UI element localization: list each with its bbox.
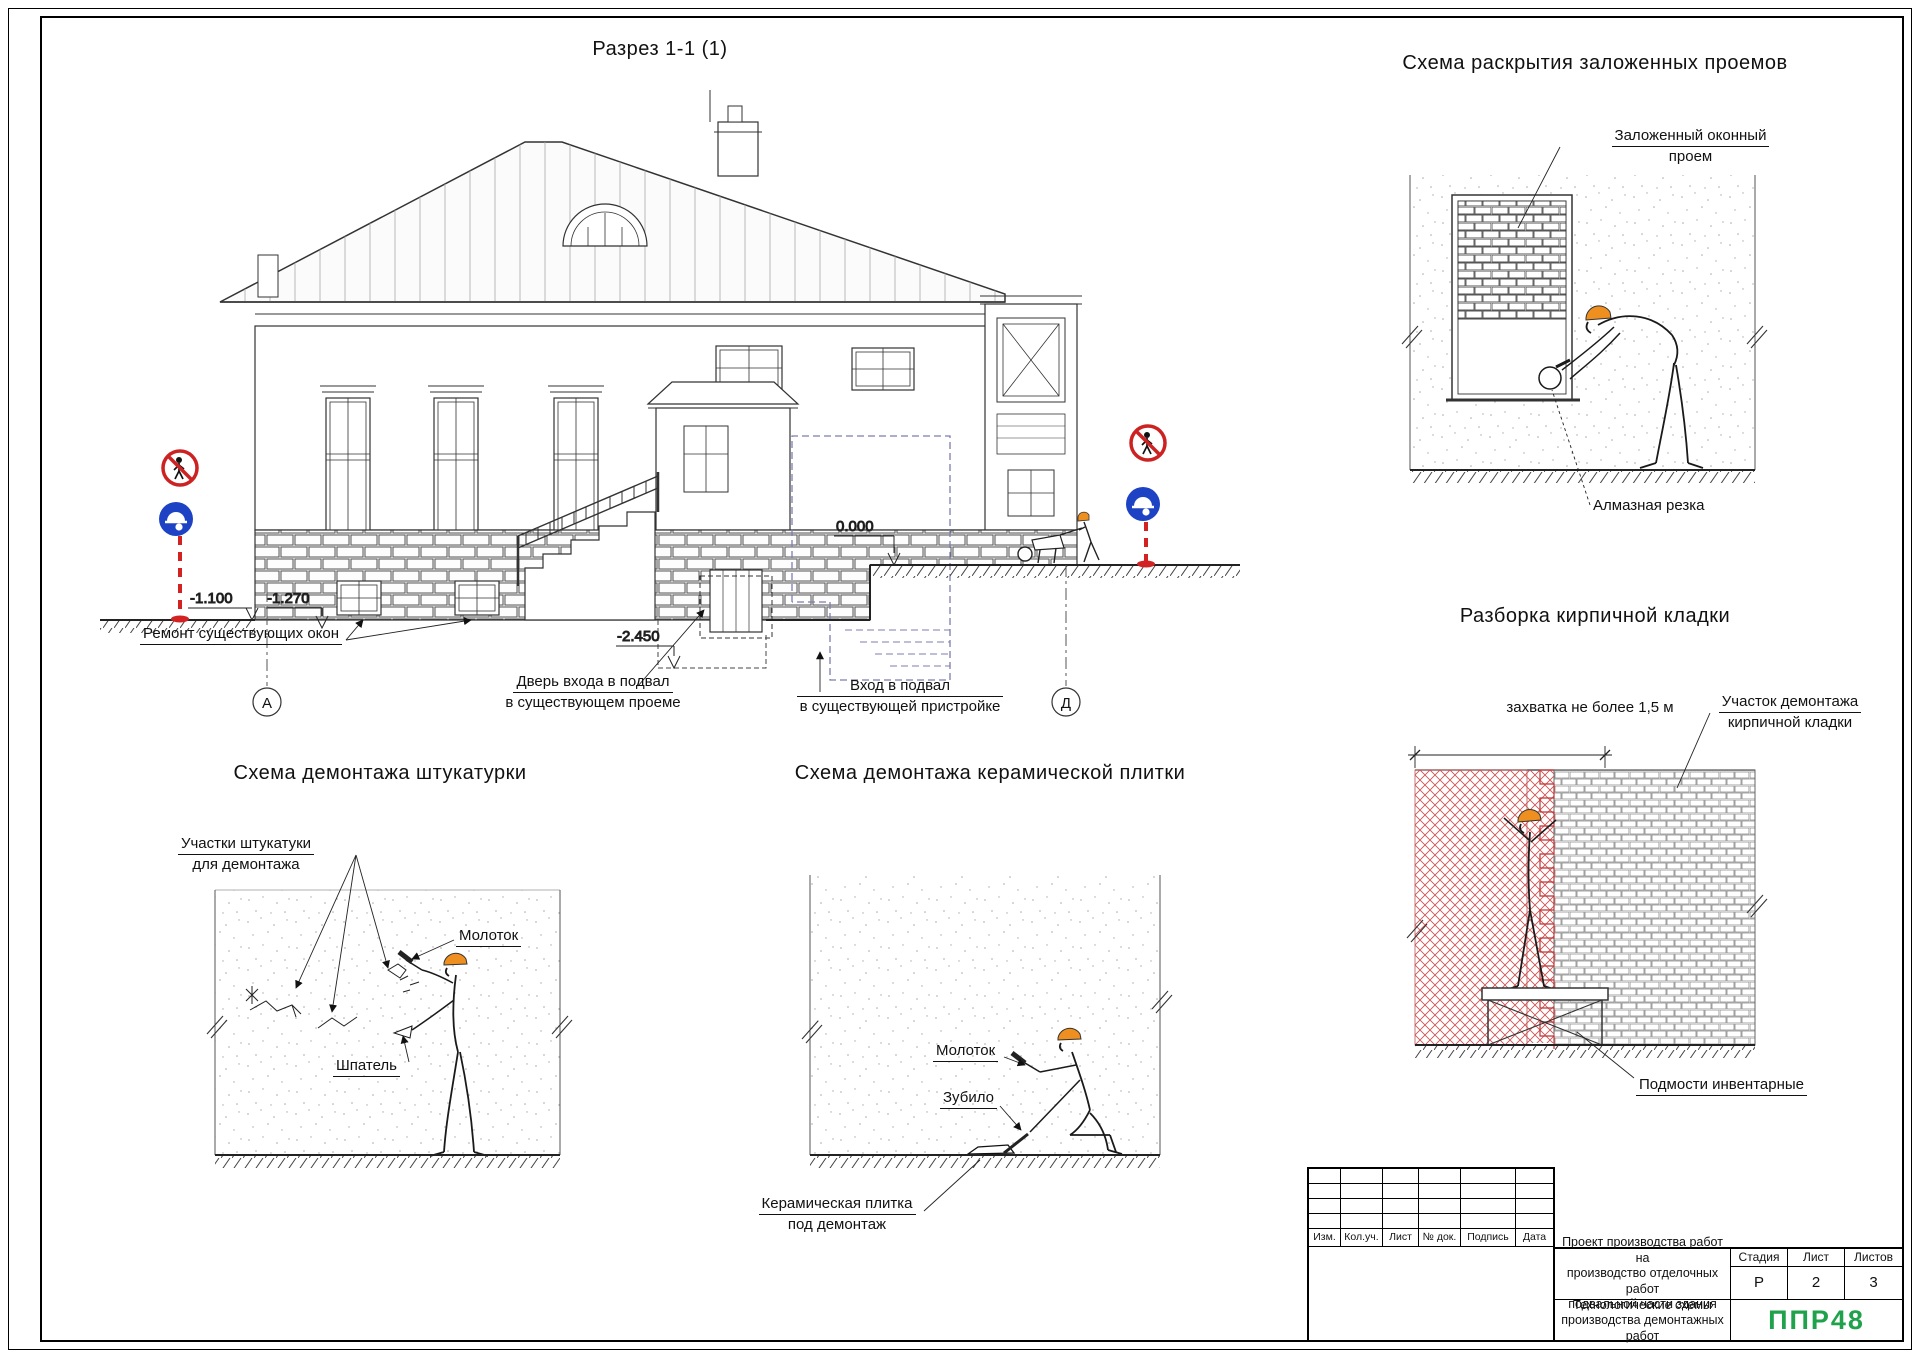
wall-area <box>810 875 1160 1155</box>
brick-scheme-title: Разборка кирпичной кладки <box>1335 605 1855 628</box>
sign-post-right <box>1126 426 1165 568</box>
label-chisel: Зубило <box>940 1088 997 1109</box>
col-izm: Изм. <box>1309 1229 1341 1246</box>
diamond-saw <box>1539 367 1561 389</box>
label-diamond-cutting: Алмазная резка <box>1593 496 1705 515</box>
dimension-line <box>1408 746 1612 768</box>
roof <box>220 90 1005 302</box>
hard-hat-sign-icon <box>1126 487 1160 521</box>
label-blocked-opening: Заложенный оконный проем <box>1553 126 1828 166</box>
col-list: Лист <box>1383 1229 1419 1246</box>
axis-letter: А <box>262 695 272 712</box>
col-podpis: Подпись <box>1461 1229 1516 1246</box>
basement-window <box>455 581 499 615</box>
brick-infill <box>1458 201 1566 319</box>
plaster-scheme-drawing <box>100 820 660 1240</box>
basement-door <box>700 570 772 638</box>
blocked-window <box>1446 195 1580 400</box>
label-tile: Керамическая плитка под демонтаж <box>748 1194 926 1234</box>
label-plaster-areas: Участки штукатуки для демонтажа <box>126 834 366 874</box>
demolished-area <box>1415 770 1527 1045</box>
ground-hatch <box>810 1156 1160 1168</box>
porch <box>648 382 798 530</box>
tile-scheme-title: Схема демонтажа керамической плитки <box>710 762 1270 785</box>
label-scaffold: Подмости инвентарные <box>1636 1075 1807 1096</box>
label-spatula: Шпатель <box>333 1056 400 1077</box>
signature-grid: Изм. Кол.уч. Лист № док. Подпись Дата <box>1309 1169 1553 1247</box>
ground-hatch <box>872 566 1240 578</box>
label-basement-entry: Вход в подвал в существующей пристройке <box>795 676 1005 716</box>
elevation-value: -1.270 <box>267 590 310 607</box>
no-pedestrians-sign-icon <box>163 451 197 485</box>
stage-header: Стадия <box>1731 1249 1788 1267</box>
no-pedestrians-sign-icon <box>1131 426 1165 460</box>
sheets-value: 3 <box>1845 1267 1902 1300</box>
bay-window <box>980 296 1082 530</box>
opening-scheme-title: Схема раскрытия заложенных проемов <box>1335 52 1855 75</box>
basement-window <box>337 581 381 615</box>
sheet: Разрез 1-1 (1) Схема раскрытия заложенны… <box>0 0 1920 1358</box>
sheets-header: Листов <box>1845 1249 1902 1267</box>
window-tall <box>320 386 376 548</box>
stage-value: Р <box>1731 1267 1788 1300</box>
title-block-main: Проект производства работ на производств… <box>1553 1247 1904 1342</box>
elevation-value: -2.450 <box>617 628 660 645</box>
company-logo: ППР48 <box>1731 1300 1902 1342</box>
elevation-value: -1.100 <box>190 590 233 607</box>
title-block-signatures: Изм. Кол.уч. Лист № док. Подпись Дата <box>1307 1167 1555 1342</box>
col-koluch: Кол.уч. <box>1341 1229 1383 1246</box>
axis-letter: Д <box>1061 695 1071 712</box>
window-tall <box>428 386 484 548</box>
col-data: Дата <box>1516 1229 1553 1246</box>
label-hammer-plaster: Молоток <box>456 926 521 947</box>
doc-name: Технологические схемы производства демон… <box>1555 1300 1731 1342</box>
label-brick-area: Участок демонтажа кирпичной кладки <box>1705 692 1875 732</box>
project-name: Проект производства работ на производств… <box>1555 1249 1731 1300</box>
ground-hatch <box>215 1156 560 1168</box>
brick-wall <box>1554 770 1755 1045</box>
col-ndok: № док. <box>1419 1229 1461 1246</box>
label-hammer-tile: Молоток <box>933 1041 998 1062</box>
plaster-scheme-title: Схема демонтажа штукатурки <box>100 762 660 785</box>
label-basement-door: Дверь входа в подвал в существующем прое… <box>498 672 688 712</box>
sheet-header: Лист <box>1788 1249 1845 1267</box>
basement-wall <box>255 530 1077 668</box>
elevation-value: 0.000 <box>836 518 874 535</box>
ground-hatch <box>1415 1046 1755 1058</box>
hard-hat-sign-icon <box>159 502 193 536</box>
label-dimension: захватка не более 1,5 м <box>1470 698 1710 717</box>
window-small <box>852 348 914 390</box>
label-repair-windows: Ремонт существующих окон <box>140 624 342 645</box>
sheet-value: 2 <box>1788 1267 1845 1300</box>
